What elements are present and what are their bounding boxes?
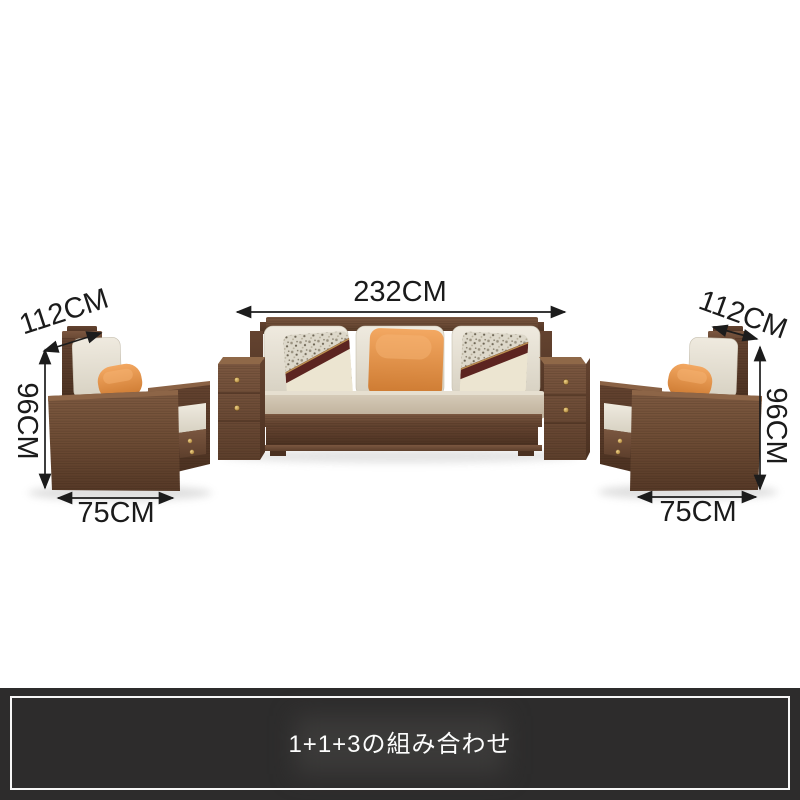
sofa-side-table-left [218, 357, 265, 460]
sofa-side-table-right [539, 357, 590, 460]
patterned-pillow-left [283, 331, 353, 401]
armchair-right-seat-rail [604, 429, 632, 458]
armchair-right [600, 326, 762, 491]
drawer-knob [234, 405, 239, 410]
dimension-label-left-height: 96CM [12, 376, 42, 466]
dimension-label-sofa-width: 232CM [330, 277, 470, 307]
armchair-left-front-panel [48, 390, 180, 491]
armchair-left-seat-cushion [176, 403, 206, 433]
drawer-knob [563, 379, 568, 384]
armchair-left-seat-rail [178, 429, 206, 458]
drawer-knob [618, 439, 622, 443]
combination-banner: 1+1+3の組み合わせ [0, 688, 800, 800]
drawer-knob [190, 450, 194, 454]
drawer-knob [616, 450, 620, 454]
drawer-knob [234, 377, 239, 382]
armchair-right-seat-cushion [604, 403, 634, 433]
drawer-knob [188, 439, 192, 443]
patterned-pillow-right [459, 331, 528, 400]
three-seat-sofa [218, 317, 590, 460]
product-dimension-image: 112CM 96CM 75CM 232CM 112CM 96CM 75CM 1+… [0, 0, 800, 800]
sofa-set-illustration [0, 0, 800, 800]
sofa-base [262, 414, 542, 456]
armchair-left [48, 326, 210, 491]
dimension-label-left-depth: 75CM [66, 498, 166, 528]
banner-caption: 1+1+3の組み合わせ [0, 688, 800, 794]
dimension-label-right-depth: 75CM [648, 497, 748, 527]
dimension-label-right-height: 96CM [761, 381, 791, 471]
drawer-knob [563, 407, 568, 412]
orange-pillow-center [368, 328, 444, 399]
armchair-right-front-panel [630, 390, 762, 491]
